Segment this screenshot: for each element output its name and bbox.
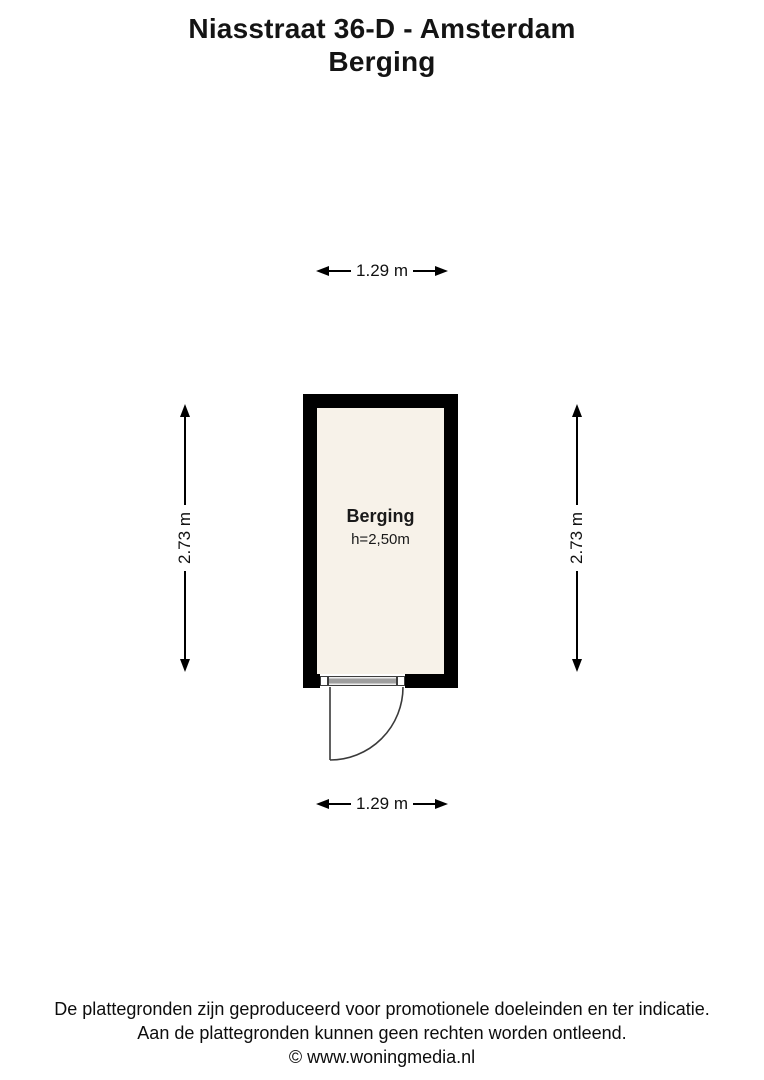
disclaimer-line-1: De plattegronden zijn geproduceerd voor … <box>0 997 764 1021</box>
room-berging: Berging h=2,50m <box>303 394 458 688</box>
page-title: Niasstraat 36-D - Amsterdam Berging <box>0 12 764 78</box>
title-address: Niasstraat 36-D - Amsterdam <box>0 12 764 45</box>
arrow-right-icon <box>435 266 448 276</box>
dimension-top-width: 1.29 m <box>316 261 448 281</box>
arrow-right-icon <box>435 799 448 809</box>
dimension-line <box>184 417 186 505</box>
dimension-top-width-label: 1.29 m <box>351 261 413 281</box>
door-threshold <box>328 676 397 686</box>
dimension-line <box>576 417 578 505</box>
arrow-up-icon <box>572 404 582 417</box>
dimension-line <box>329 803 351 805</box>
dimension-bottom-width-label: 1.29 m <box>351 794 413 814</box>
room-ceiling-height-label: h=2,50m <box>351 531 410 548</box>
arrow-left-icon <box>316 799 329 809</box>
dimension-line <box>329 270 351 272</box>
copyright-line: © www.woningmedia.nl <box>0 1045 764 1069</box>
footer-disclaimer: De plattegronden zijn geproduceerd voor … <box>0 997 764 1069</box>
dimension-right-height-label: 2.73 m <box>568 505 586 571</box>
dimension-left-height-label: 2.73 m <box>176 505 194 571</box>
room-name-label: Berging <box>346 506 414 527</box>
dimension-right-height: 2.73 m <box>568 404 586 672</box>
door-swing-arc <box>303 687 453 767</box>
dimension-line <box>413 270 435 272</box>
arrow-left-icon <box>316 266 329 276</box>
arrow-up-icon <box>180 404 190 417</box>
dimension-bottom-width: 1.29 m <box>316 794 448 814</box>
dimension-line <box>184 571 186 659</box>
room-label-block: Berging h=2,50m <box>303 506 458 548</box>
dimension-left-height: 2.73 m <box>176 404 194 672</box>
floorplan-page: Niasstraat 36-D - Amsterdam Berging 1.29… <box>0 0 764 1080</box>
door-jamb-left <box>320 676 328 686</box>
arrow-down-icon <box>572 659 582 672</box>
door-jamb-right <box>397 676 405 686</box>
arrow-down-icon <box>180 659 190 672</box>
dimension-line <box>576 571 578 659</box>
title-room-type: Berging <box>0 45 764 78</box>
dimension-line <box>413 803 435 805</box>
disclaimer-line-2: Aan de plattegronden kunnen geen rechten… <box>0 1021 764 1045</box>
